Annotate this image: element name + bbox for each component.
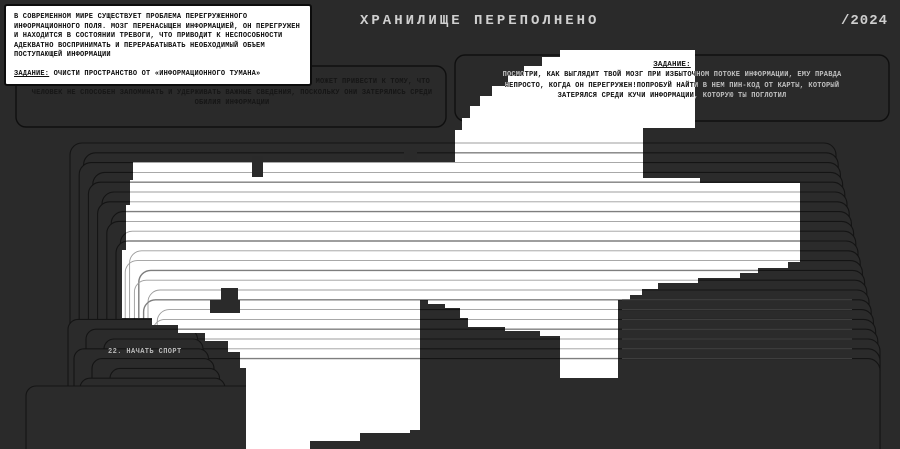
right-note-task-label: ЗАДАНИЕ: [457,60,887,70]
overloaded-storage-screen: { "header": { "title": "ХРАНИЛИЩЕ ПЕРЕПО… [0,0,900,449]
intro-popup: В СОВРЕМЕННОМ МИРЕ СУЩЕСТВУЕТ ПРОБЛЕМА П… [4,4,312,86]
task-text: ОЧИСТИ ПРОСТРАНСТВО ОТ «ИНФОРМАЦИОННОГО … [49,70,260,78]
year-label: /2024 [841,13,888,29]
sport-card-label[interactable]: 22. НАЧАТЬ СПОРТ [108,348,182,356]
right-note-line-2: НЕПРОСТО, КОГДА ОН ПЕРЕГРУЖЕН!ПОПРОБУЙ Н… [457,81,887,92]
task-label: ЗАДАНИЕ: [14,70,49,78]
page-title: ХРАНИЛИЩЕ ПЕРЕПОЛНЕНО [360,13,599,29]
right-note-line-1: ПОСМОТРИ, КАК ВЫГЛЯДИТ ТВОЙ МОЗГ ПРИ ИЗБ… [457,70,887,81]
intro-popup-text: В СОВРЕМЕННОМ МИРЕ СУЩЕСТВУЕТ ПРОБЛЕМА П… [14,13,304,61]
intro-popup-task: ЗАДАНИЕ: ОЧИСТИ ПРОСТРАНСТВО ОТ «ИНФОРМА… [14,70,304,80]
right-note-line-3: ЗАТЕРЯЛСЯ СРЕДИ КУЧИ ИНФОРМАЦИИ, КОТОРУЮ… [457,91,887,102]
right-note: ЗАДАНИЕ: ПОСМОТРИ, КАК ВЫГЛЯДИТ ТВОЙ МОЗ… [457,60,887,102]
